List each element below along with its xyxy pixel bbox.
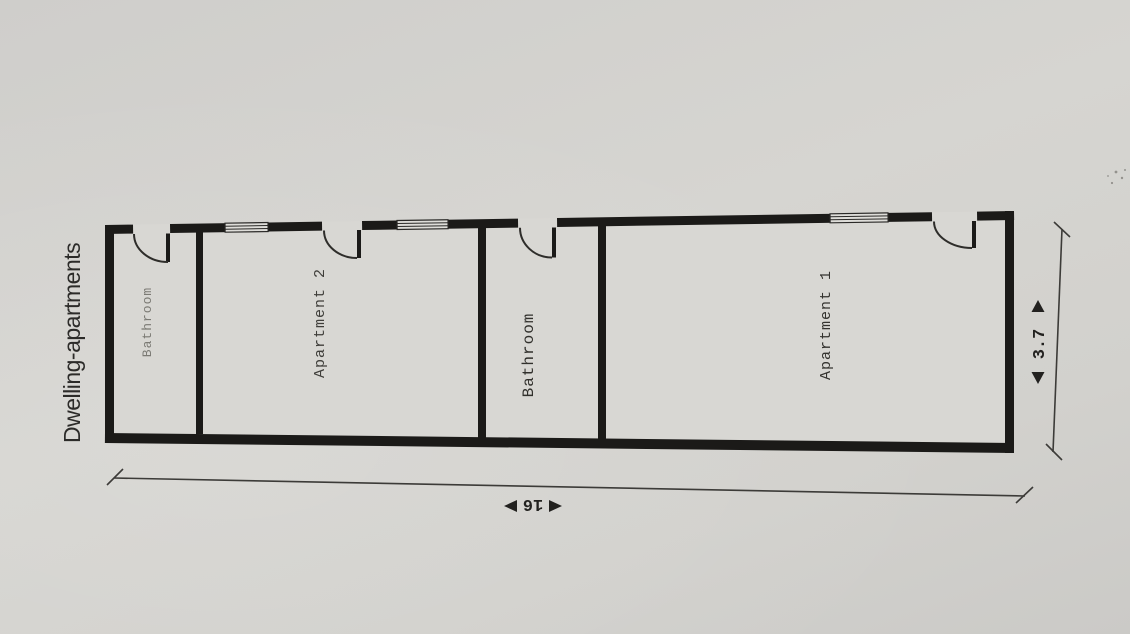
interior-wall-bathroom1-apartment2 [196, 224, 203, 434]
dimension-arrow-up [1032, 300, 1045, 312]
window-symbol [225, 223, 268, 233]
room-label-bathroom-2: Bathroom [520, 313, 538, 398]
interior-wall-apartment2-bathroom2 [478, 220, 486, 438]
room-label-apartment-2: Apartment 2 [312, 268, 329, 378]
dimension-arrow-down [1032, 372, 1045, 384]
dimension-label-length: 16 [523, 494, 543, 513]
dimension-arrow-left [504, 500, 517, 512]
dimension-line-length [114, 478, 1025, 496]
door-jamb-stub [166, 234, 170, 263]
door-jamb-stub [357, 230, 361, 258]
room-label-apartment-1: Apartment 1 [818, 270, 835, 380]
drawing-title: Dwelling-apartments [59, 243, 85, 443]
room-label-bathroom-1: Bathroom [140, 287, 155, 357]
dimension-tick [1016, 487, 1033, 503]
dimension-label-depth: 3.7 [1031, 329, 1050, 360]
door-jamb-stub [552, 228, 556, 258]
left-wall [105, 225, 114, 443]
window-symbol [397, 220, 448, 230]
scanned-floor-plan-photo: 16 3.7 Dwelling-apartments Bathroom Apar… [0, 0, 1130, 634]
interior-wall-bathroom2-apartment1 [598, 218, 606, 439]
window-symbol [830, 213, 888, 223]
floor-interior [105, 211, 1014, 453]
photo-noise-specks [1107, 169, 1126, 184]
dimension-line-depth [1053, 229, 1062, 452]
floor-plan-drawing: 16 3.7 Dwelling-apartments Bathroom Apar… [0, 0, 1130, 634]
dimension-arrow-right [549, 500, 562, 512]
dimension-tick [107, 469, 123, 485]
door-jamb-stub [972, 221, 976, 248]
right-wall [1005, 211, 1014, 453]
